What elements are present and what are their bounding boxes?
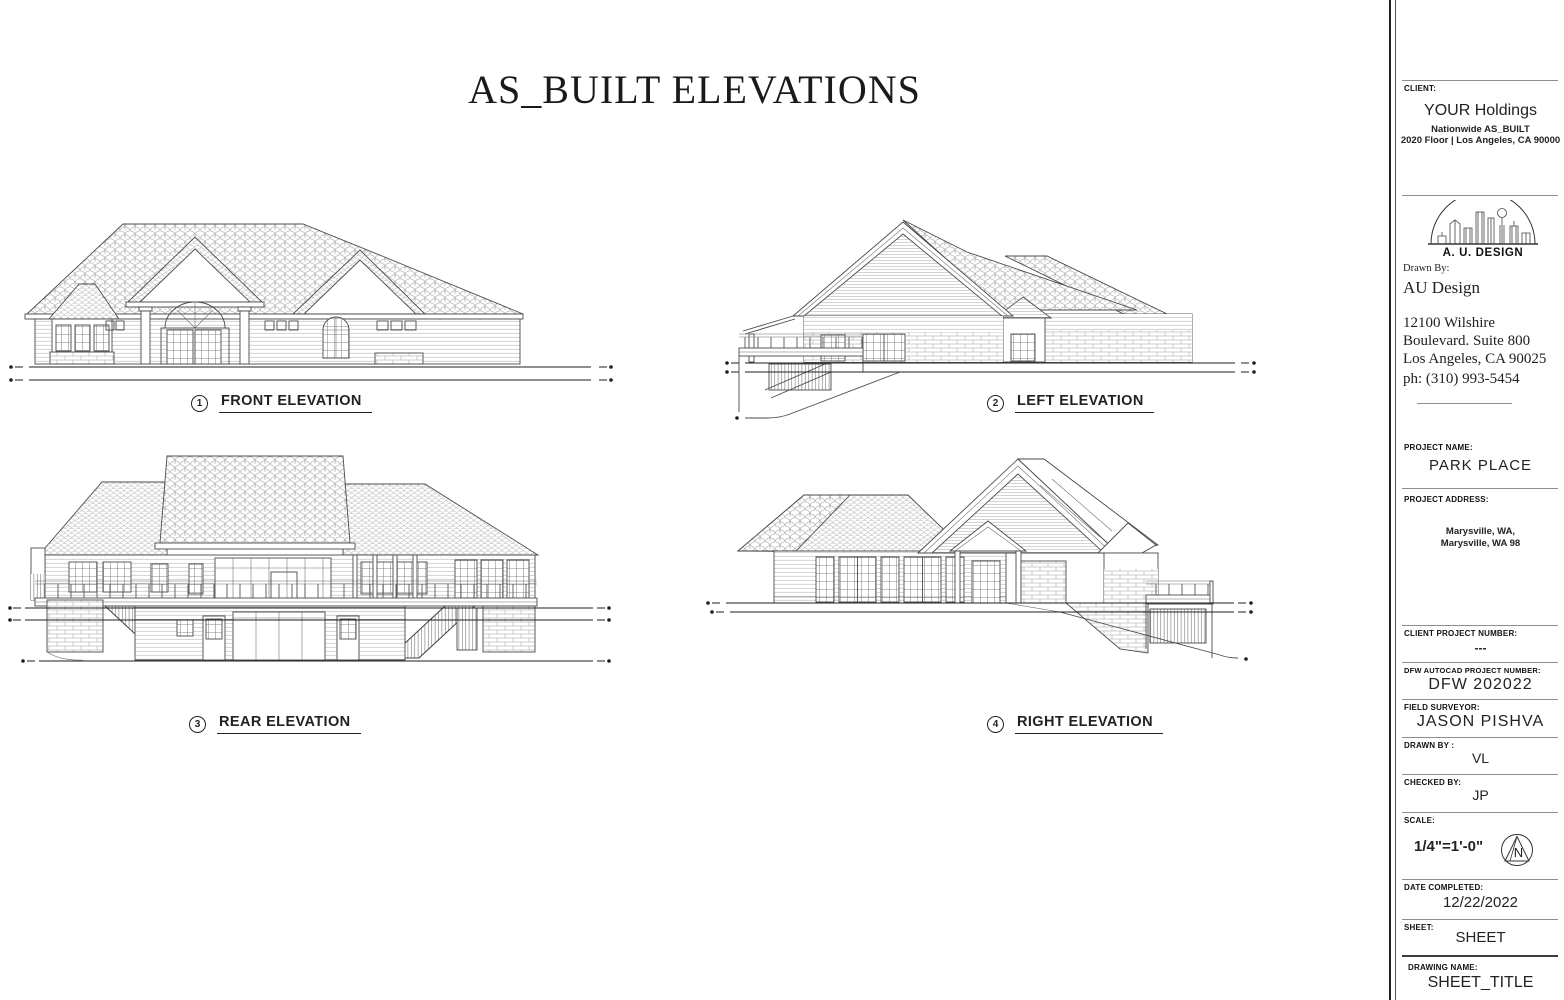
elevation-label-text: REAR ELEVATION: [217, 714, 361, 734]
client-label: CLIENT:: [1404, 84, 1436, 93]
firm-logo: A. U. DESIGN: [1424, 200, 1542, 259]
field-surveyor-label: FIELD SURVEYOR:: [1404, 703, 1480, 712]
checked-by-label: CHECKED BY:: [1404, 778, 1461, 787]
elevation-label-text: LEFT ELEVATION: [1015, 393, 1154, 413]
rear-elevation-drawing: [5, 448, 625, 693]
elevation-number-badge: 1: [191, 395, 208, 412]
north-letter: N: [1514, 845, 1523, 860]
elevation-sheet: AS_BUILT ELEVATIONS: [0, 0, 1564, 1000]
scale-value: 1/4"=1'-0": [1414, 838, 1483, 855]
separator: [1402, 919, 1558, 920]
separator: [1402, 195, 1558, 196]
elevation-label-text: FRONT ELEVATION: [219, 393, 372, 413]
elevation-number-badge: 4: [987, 716, 1004, 733]
separator: [1402, 80, 1558, 81]
dfw-autocad-project-number-value: DFW 202022: [1397, 676, 1564, 694]
title-block-border-inner: [1395, 0, 1396, 1000]
scale-label: SCALE:: [1404, 816, 1435, 825]
field-surveyor-value: JASON PISHVA: [1397, 713, 1564, 731]
drawing-name-value: SHEET_TITLE: [1397, 974, 1564, 992]
left-elevation-label: 2 LEFT ELEVATION: [987, 393, 1154, 413]
sheet-title: AS_BUILT ELEVATIONS: [0, 66, 1389, 113]
firm-address-line1: 12100 Wilshire: [1403, 315, 1495, 332]
front-brick-planter: [375, 353, 423, 364]
short-separator: [1417, 403, 1512, 404]
front-elevation-drawing: [5, 190, 625, 395]
front-ground-lines: [9, 365, 613, 382]
date-completed-label: DATE COMPLETED:: [1404, 883, 1483, 892]
separator-thick: [1402, 955, 1558, 957]
right-main-gable: [918, 459, 1158, 553]
rear-roofs: [39, 456, 538, 555]
drawn-by-value: VL: [1397, 750, 1564, 766]
drawn-by-label: DRAWN BY :: [1404, 741, 1454, 750]
project-address-line1: Marysville, WA,: [1397, 526, 1564, 537]
client-line2: 2020 Floor | Los Angeles, CA 90000: [1397, 135, 1564, 146]
project-name-value: PARK PLACE: [1397, 457, 1564, 474]
skyline-logo-icon: [1424, 200, 1542, 246]
separator: [1402, 737, 1558, 738]
separator: [1402, 879, 1558, 880]
north-arrow-icon: N: [1499, 832, 1535, 868]
right-ground-lines: [706, 601, 1253, 614]
logo-text: A. U. DESIGN: [1424, 247, 1542, 259]
right-deck-stairs: [1146, 581, 1213, 658]
separator: [1402, 699, 1558, 700]
separator: [1402, 812, 1558, 813]
firm-address-line3: Los Angeles, CA 90025: [1403, 351, 1546, 368]
dfw-autocad-project-number-label: DFW AUTOCAD PROJECT NUMBER:: [1404, 666, 1541, 675]
firm-address-line2: Boulevard. Suite 800: [1403, 333, 1530, 350]
rear-elevation-label: 3 REAR ELEVATION: [189, 714, 361, 734]
right-elevation-label: 4 RIGHT ELEVATION: [987, 714, 1163, 734]
drawing-name-label: DRAWING NAME:: [1408, 963, 1478, 972]
title-block-border-outer: [1389, 0, 1391, 1000]
elevation-label-text: RIGHT ELEVATION: [1015, 714, 1163, 734]
firm-phone: ph: (310) 993-5454: [1403, 371, 1520, 388]
firm-name: AU Design: [1403, 278, 1480, 298]
separator: [1402, 488, 1558, 489]
right-wall: [774, 551, 1006, 603]
project-address-label: PROJECT ADDRESS:: [1404, 495, 1489, 504]
elevation-number-badge: 2: [987, 395, 1004, 412]
right-elevation-drawing: [700, 445, 1285, 680]
date-completed-value: 12/22/2022: [1397, 894, 1564, 911]
sheet-value: SHEET: [1397, 929, 1564, 946]
rear-lower-wall: [135, 606, 405, 660]
separator: [1402, 625, 1558, 626]
front-elevation-label: 1 FRONT ELEVATION: [191, 393, 372, 413]
client-line1: Nationwide AS_BUILT: [1397, 124, 1564, 135]
project-address-line2: Marysville, WA 98: [1397, 538, 1564, 549]
drawn-by-firm-label: Drawn By:: [1403, 263, 1449, 274]
separator: [1402, 662, 1558, 663]
checked-by-value: JP: [1397, 787, 1564, 803]
separator: [1402, 774, 1558, 775]
rear-deck: [35, 581, 537, 606]
elevation-number-badge: 3: [189, 716, 206, 733]
client-project-number-label: CLIENT PROJECT NUMBER:: [1404, 629, 1517, 638]
client-name: YOUR Holdings: [1397, 102, 1564, 120]
project-name-label: PROJECT NAME:: [1404, 443, 1473, 452]
client-project-number-value: ---: [1397, 641, 1564, 655]
